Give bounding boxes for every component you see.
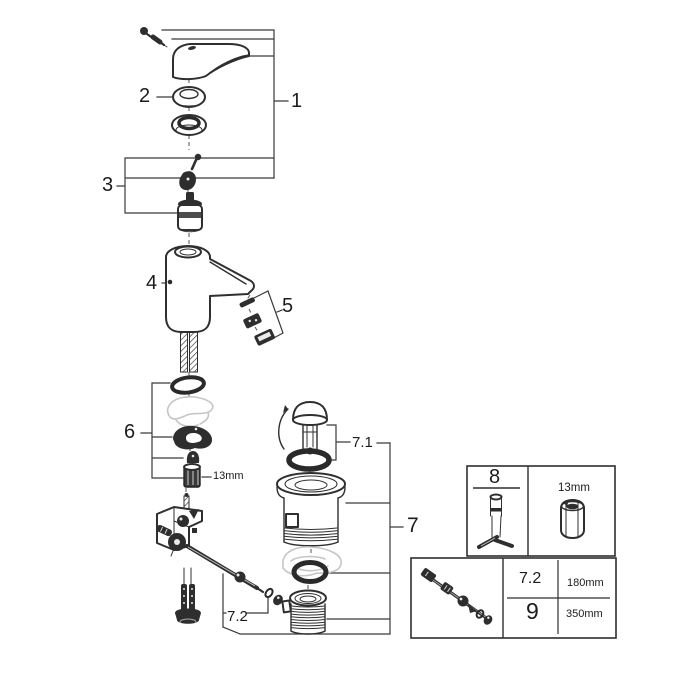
mounting-horseshoe-drawing (173, 426, 212, 450)
callout-1-label: 1 (291, 91, 302, 111)
popup-plug-drawing (279, 402, 327, 455)
lift-rod-drawing (175, 568, 201, 625)
socket-nut-drawing (561, 500, 584, 538)
handle-screw-drawing (140, 27, 164, 45)
faucet-exploded-diagram: 1 2 3 4 5 6 7 7.1 7.2 13mm 8 13mm 7.2 18… (0, 0, 700, 700)
faucet-body-drawing (166, 246, 254, 332)
rod-table-length-350-label: 350mm (566, 609, 603, 620)
lever-handle-drawing (173, 44, 249, 79)
rod-grommet-drawing (168, 533, 186, 556)
cartridge-screw-drawing (192, 154, 201, 169)
cap-ring-drawing (173, 87, 205, 107)
info-box-rod (411, 558, 616, 638)
aerator-parts-drawing (239, 297, 276, 346)
pivot-rod-drawing (187, 546, 285, 607)
callout-4-label: 4 (146, 273, 157, 293)
rod-table-length-180-label: 180mm (567, 578, 604, 589)
info-box-8-size-label: 13mm (558, 483, 590, 495)
rod-table-part-9-label: 9 (526, 600, 539, 623)
callout-7-1-label: 7.1 (352, 435, 373, 450)
dome-cap-drawing (172, 115, 206, 135)
callout-5-label: 5 (282, 296, 293, 316)
callout-2-label: 2 (139, 86, 150, 106)
rod-table-part-7-2-label: 7.2 (519, 571, 541, 587)
callout-7-label: 7 (407, 515, 419, 536)
cartridge-cone-drawing (179, 171, 196, 190)
callout-6-label: 6 (124, 422, 135, 442)
drain-upper-drawing (277, 473, 345, 546)
mounting-ghost-drawing (168, 397, 213, 427)
nut-size-label: 13mm (213, 471, 244, 482)
info-box-8-part-label: 8 (489, 467, 500, 487)
drain-lower-drawing (282, 591, 326, 635)
callout-3-label: 3 (102, 175, 113, 195)
plug-seal-drawing (289, 451, 329, 469)
drain-oring-drawing (294, 563, 326, 582)
base-gasket-drawing (171, 375, 205, 394)
mounting-nut-drawing (184, 464, 200, 487)
diagram-canvas (0, 0, 700, 700)
threaded-stud-drawing (181, 332, 198, 372)
mounting-cone-drawing (187, 451, 199, 463)
cartridge-drawing (178, 192, 202, 232)
callout-7-2-label: 7.2 (227, 609, 248, 624)
